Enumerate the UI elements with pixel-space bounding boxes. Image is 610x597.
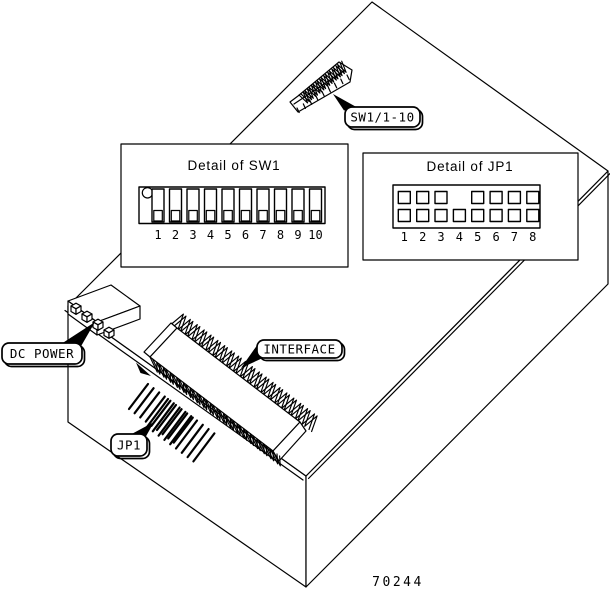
detail-sw1-number: 1: [154, 228, 161, 242]
detail-sw1-toggle-slider: [189, 211, 198, 222]
detail-jp1-pad-top: [398, 192, 410, 204]
detail-sw1-number: 8: [277, 228, 284, 242]
detail-jp1-pad-bottom: [453, 210, 465, 222]
detail-jp1-pad-bottom: [398, 210, 410, 222]
detail-jp1-title: Detail of JP1: [427, 159, 514, 174]
detail-sw1-toggle-slider: [224, 211, 233, 222]
detail-sw1-number: 2: [172, 228, 179, 242]
detail-jp1-number: 3: [437, 230, 444, 244]
callout-jp1-label: JP1: [117, 438, 141, 453]
detail-jp1-pad-bottom: [417, 210, 429, 222]
detail-sw1-toggle-slider: [171, 211, 180, 222]
isometric-device-diagram: Detail of SW1 12345678910 Detail of JP1 …: [0, 0, 610, 597]
detail-jp1-number: 2: [419, 230, 426, 244]
detail-sw1-toggle-slider: [154, 211, 163, 222]
detail-jp1-pad-top: [417, 192, 429, 204]
detail-sw1-number: 9: [294, 228, 301, 242]
detail-jp1-pad-bottom: [508, 210, 520, 222]
detail-jp1-pad-top: [472, 192, 484, 204]
detail-jp1-pad-top: [508, 192, 520, 204]
detail-jp1-pad-top: [435, 192, 447, 204]
detail-jp1-pad-bottom: [435, 210, 447, 222]
detail-jp1-number: 6: [492, 230, 499, 244]
detail-jp1-number: 8: [529, 230, 536, 244]
callout-interface-label: INTERFACE: [263, 342, 335, 357]
detail-jp1-number: 5: [474, 230, 481, 244]
figure-number: 70244: [372, 575, 424, 590]
detail-sw1-toggle-slider: [206, 211, 215, 222]
detail-jp1-pad-bottom: [527, 210, 539, 222]
detail-jp1-number: 7: [511, 230, 518, 244]
detail-jp1-pad-top: [527, 192, 539, 204]
technical-diagram-page: Detail of SW1 12345678910 Detail of JP1 …: [0, 0, 610, 597]
callout-dc-label: DC POWER: [10, 346, 74, 361]
detail-of-jp1: Detail of JP1 12345678: [363, 153, 578, 260]
detail-sw1-number: 10: [308, 228, 322, 242]
detail-sw1-toggle-slider: [294, 211, 303, 222]
detail-jp1-number: 1: [401, 230, 408, 244]
detail-sw1-toggle-slider: [259, 211, 268, 222]
detail-sw1-toggle-slider: [276, 211, 285, 222]
detail-jp1-pad-bottom: [490, 210, 502, 222]
detail-jp1-pad-top: [490, 192, 502, 204]
detail-of-sw1: Detail of SW1 12345678910: [121, 144, 348, 267]
detail-sw1-toggle-slider: [241, 211, 250, 222]
callout-sw1-label: SW1/1-10: [350, 110, 414, 125]
detail-jp1-pad-bottom: [472, 210, 484, 222]
detail-sw1-toggle-slider: [311, 211, 320, 222]
detail-sw1-number: 6: [242, 228, 249, 242]
detail-sw1-number: 3: [189, 228, 196, 242]
detail-sw1-title: Detail of SW1: [188, 158, 281, 173]
detail-jp1-number: 4: [456, 230, 463, 244]
detail-sw1-number: 4: [207, 228, 214, 242]
detail-sw1-number: 7: [259, 228, 266, 242]
detail-sw1-number: 5: [224, 228, 231, 242]
